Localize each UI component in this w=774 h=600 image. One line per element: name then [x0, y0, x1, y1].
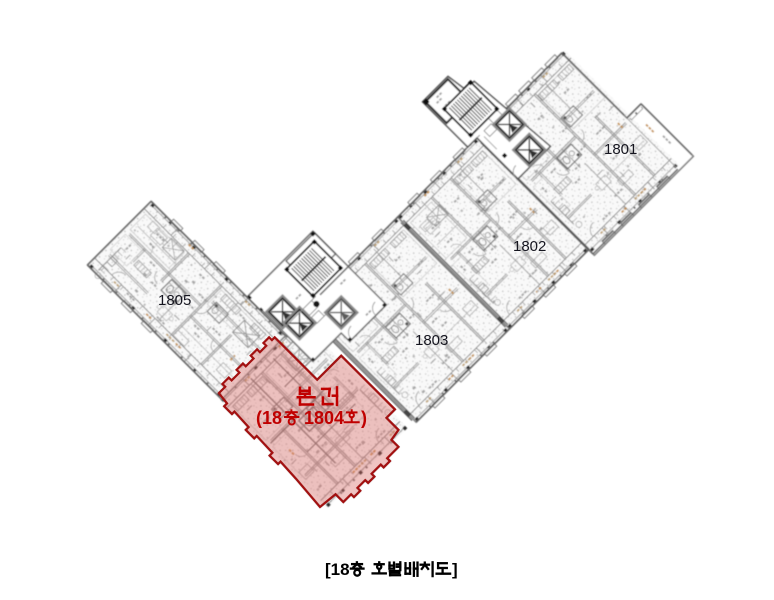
- svg-text:(18: (18: [256, 408, 282, 428]
- svg-text:1804: 1804: [304, 408, 344, 428]
- svg-text:1802: 1802: [513, 238, 546, 255]
- svg-text:1803: 1803: [415, 332, 448, 349]
- svg-text:): ): [361, 408, 367, 428]
- svg-text:1801: 1801: [604, 141, 637, 158]
- svg-text:1805: 1805: [158, 292, 191, 309]
- svg-text:[18: [18: [325, 560, 350, 579]
- svg-text:]: ]: [452, 560, 458, 579]
